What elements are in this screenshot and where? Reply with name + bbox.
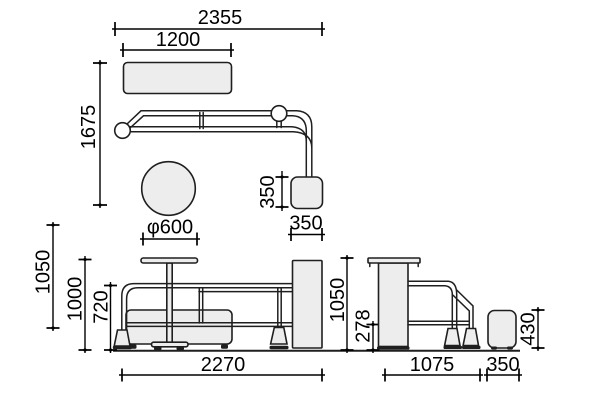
rail-tube-line — [127, 132, 312, 148]
dim-screen-height: 1050 — [33, 222, 60, 331]
table-top-edge — [141, 258, 198, 263]
rail-side — [408, 281, 481, 349]
dim-stool-height: 430 — [518, 307, 545, 351]
dim-rail-height: 720 — [91, 282, 118, 353]
base-plate-outline — [291, 177, 323, 209]
dim-label: 1050 — [327, 278, 349, 323]
tick-dot — [109, 284, 112, 287]
rail-plan — [115, 106, 312, 177]
dim-label: 2355 — [198, 7, 243, 29]
dim-overall-width: 2355 — [112, 7, 325, 36]
dim-table-height: 1000 — [65, 256, 92, 353]
dim-base-plate-depth: 350 — [257, 171, 289, 211]
rail-end-cap — [115, 123, 131, 139]
tick-dot — [98, 203, 101, 206]
stool-side — [488, 311, 516, 350]
rail-tube-line — [128, 127, 306, 141]
dim-label: φ600 — [147, 217, 193, 239]
stool-foot — [491, 347, 497, 350]
front-elevation: 1050 1000 720 — [33, 222, 326, 382]
rail-foot-cone — [445, 329, 460, 346]
rail-post — [278, 289, 281, 328]
dim-overall-depth: 1675 — [78, 60, 107, 208]
stool-body — [488, 311, 516, 349]
tick-dot — [98, 61, 101, 64]
table-base — [152, 342, 189, 347]
rail-foot-cone — [271, 328, 287, 345]
table-pedestal — [167, 263, 172, 343]
dim-label: 350 — [486, 354, 519, 376]
dim-label: 720 — [91, 290, 113, 323]
screen-panel — [293, 261, 323, 349]
counter-table-side — [368, 258, 420, 350]
dim-label: 350 — [257, 175, 279, 208]
dim-label: 430 — [518, 312, 540, 345]
tick-dot — [536, 346, 539, 349]
tick-dot — [109, 348, 112, 351]
dim-side-depth: 1075 — [382, 354, 483, 382]
drawing-canvas: 2355 1200 1675 — [0, 0, 600, 400]
dim-counter-height: 1050 — [327, 255, 354, 353]
tick-dot — [51, 326, 54, 329]
tick-dot — [280, 205, 283, 208]
dim-front-overall-width: 2270 — [119, 354, 325, 382]
dim-label: 1050 — [33, 250, 55, 295]
plan-view: 2355 1200 1675 — [78, 7, 325, 246]
counter-top-edge — [368, 258, 420, 263]
rail-far-leg — [457, 290, 473, 329]
tick-dot — [83, 258, 86, 261]
bench-top-outline — [124, 63, 232, 94]
tick-dot — [371, 348, 374, 351]
rail-mid-tube — [408, 321, 469, 324]
counter-base — [377, 346, 410, 349]
table-base-foot — [154, 347, 162, 350]
tick-dot — [345, 348, 348, 351]
rail-foot-base — [462, 346, 481, 349]
dimension-drawing: 2355 1200 1675 — [0, 0, 600, 400]
dim-base-plate-width: 350 — [288, 213, 325, 242]
table-base-foot — [177, 347, 185, 350]
tick-dot — [83, 348, 86, 351]
dim-label: 350 — [289, 213, 322, 235]
tick-dot — [536, 308, 539, 311]
dim-label: 1200 — [156, 29, 201, 51]
table-top-circle — [142, 162, 196, 216]
stool-foot — [507, 347, 513, 350]
dim-stool-width: 350 — [484, 354, 522, 382]
counter-panel-leg — [379, 263, 409, 347]
bench-foot — [221, 345, 228, 349]
dim-bench-width: 1200 — [120, 29, 234, 57]
dim-label: 1675 — [78, 105, 100, 150]
rail-foot-cone — [114, 330, 130, 346]
rail-foot-base — [444, 346, 463, 349]
tick-dot — [280, 175, 283, 178]
dim-label: 2270 — [201, 354, 246, 376]
rail-post-cap — [271, 106, 287, 122]
dim-label: 278 — [353, 309, 375, 342]
dim-table-diameter: φ600 — [140, 217, 200, 246]
dim-label: 1075 — [410, 354, 455, 376]
rail-foot-base — [270, 346, 289, 349]
tick-dot — [51, 223, 54, 226]
rail-foot-base — [113, 346, 132, 349]
side-elevation: 1050 278 — [327, 255, 545, 382]
dim-lower-rail-height: 278 — [353, 309, 380, 353]
rail-foot-cone — [463, 329, 478, 346]
dim-label: 1000 — [65, 277, 87, 322]
rail-top-tube — [408, 286, 452, 329]
tick-dot — [345, 256, 348, 259]
